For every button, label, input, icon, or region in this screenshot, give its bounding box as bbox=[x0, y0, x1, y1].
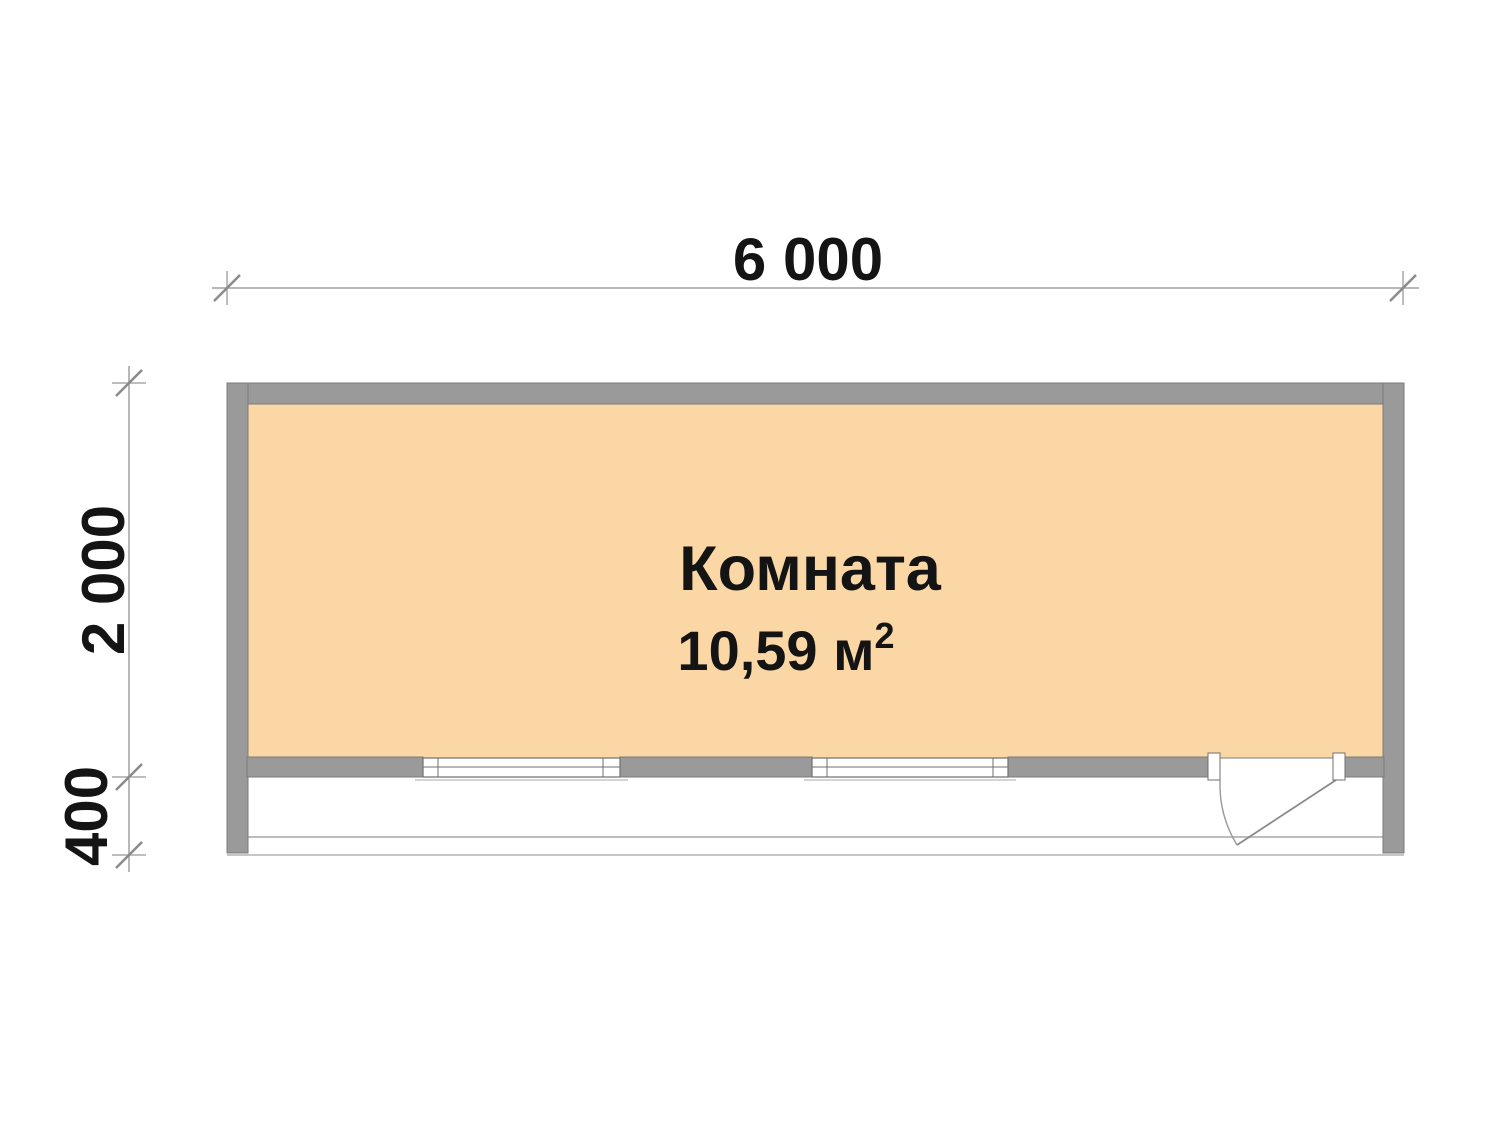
door-leaf bbox=[1237, 780, 1336, 845]
floor-plan-drawing: 6 000 2 000 400 bbox=[0, 0, 1500, 1125]
dimension-label-porch-depth: 400 bbox=[53, 766, 120, 866]
wall-bottom-segment-1 bbox=[247, 757, 423, 777]
wall-bottom-segment-4 bbox=[1345, 757, 1384, 777]
door-jamb-left bbox=[1208, 753, 1220, 780]
door-swing-arc bbox=[1220, 780, 1237, 845]
dimension-label-width: 6 000 bbox=[733, 226, 883, 293]
door-jamb-right bbox=[1333, 753, 1345, 780]
room-area-label: 10,59 м2 bbox=[677, 615, 894, 682]
wall-top bbox=[227, 383, 1404, 404]
wall-bottom-segment-3 bbox=[1008, 757, 1208, 777]
room-area-exponent: 2 bbox=[875, 615, 895, 656]
room-name-label: Комната bbox=[679, 534, 942, 604]
wall-left bbox=[227, 383, 248, 853]
dimension-label-height: 2 000 bbox=[70, 505, 137, 655]
wall-bottom-segment-2 bbox=[620, 757, 812, 777]
room-area-value: 10,59 м bbox=[677, 619, 874, 682]
floor-plan-canvas: 6 000 2 000 400 bbox=[0, 0, 1500, 1125]
wall-right bbox=[1383, 383, 1404, 853]
